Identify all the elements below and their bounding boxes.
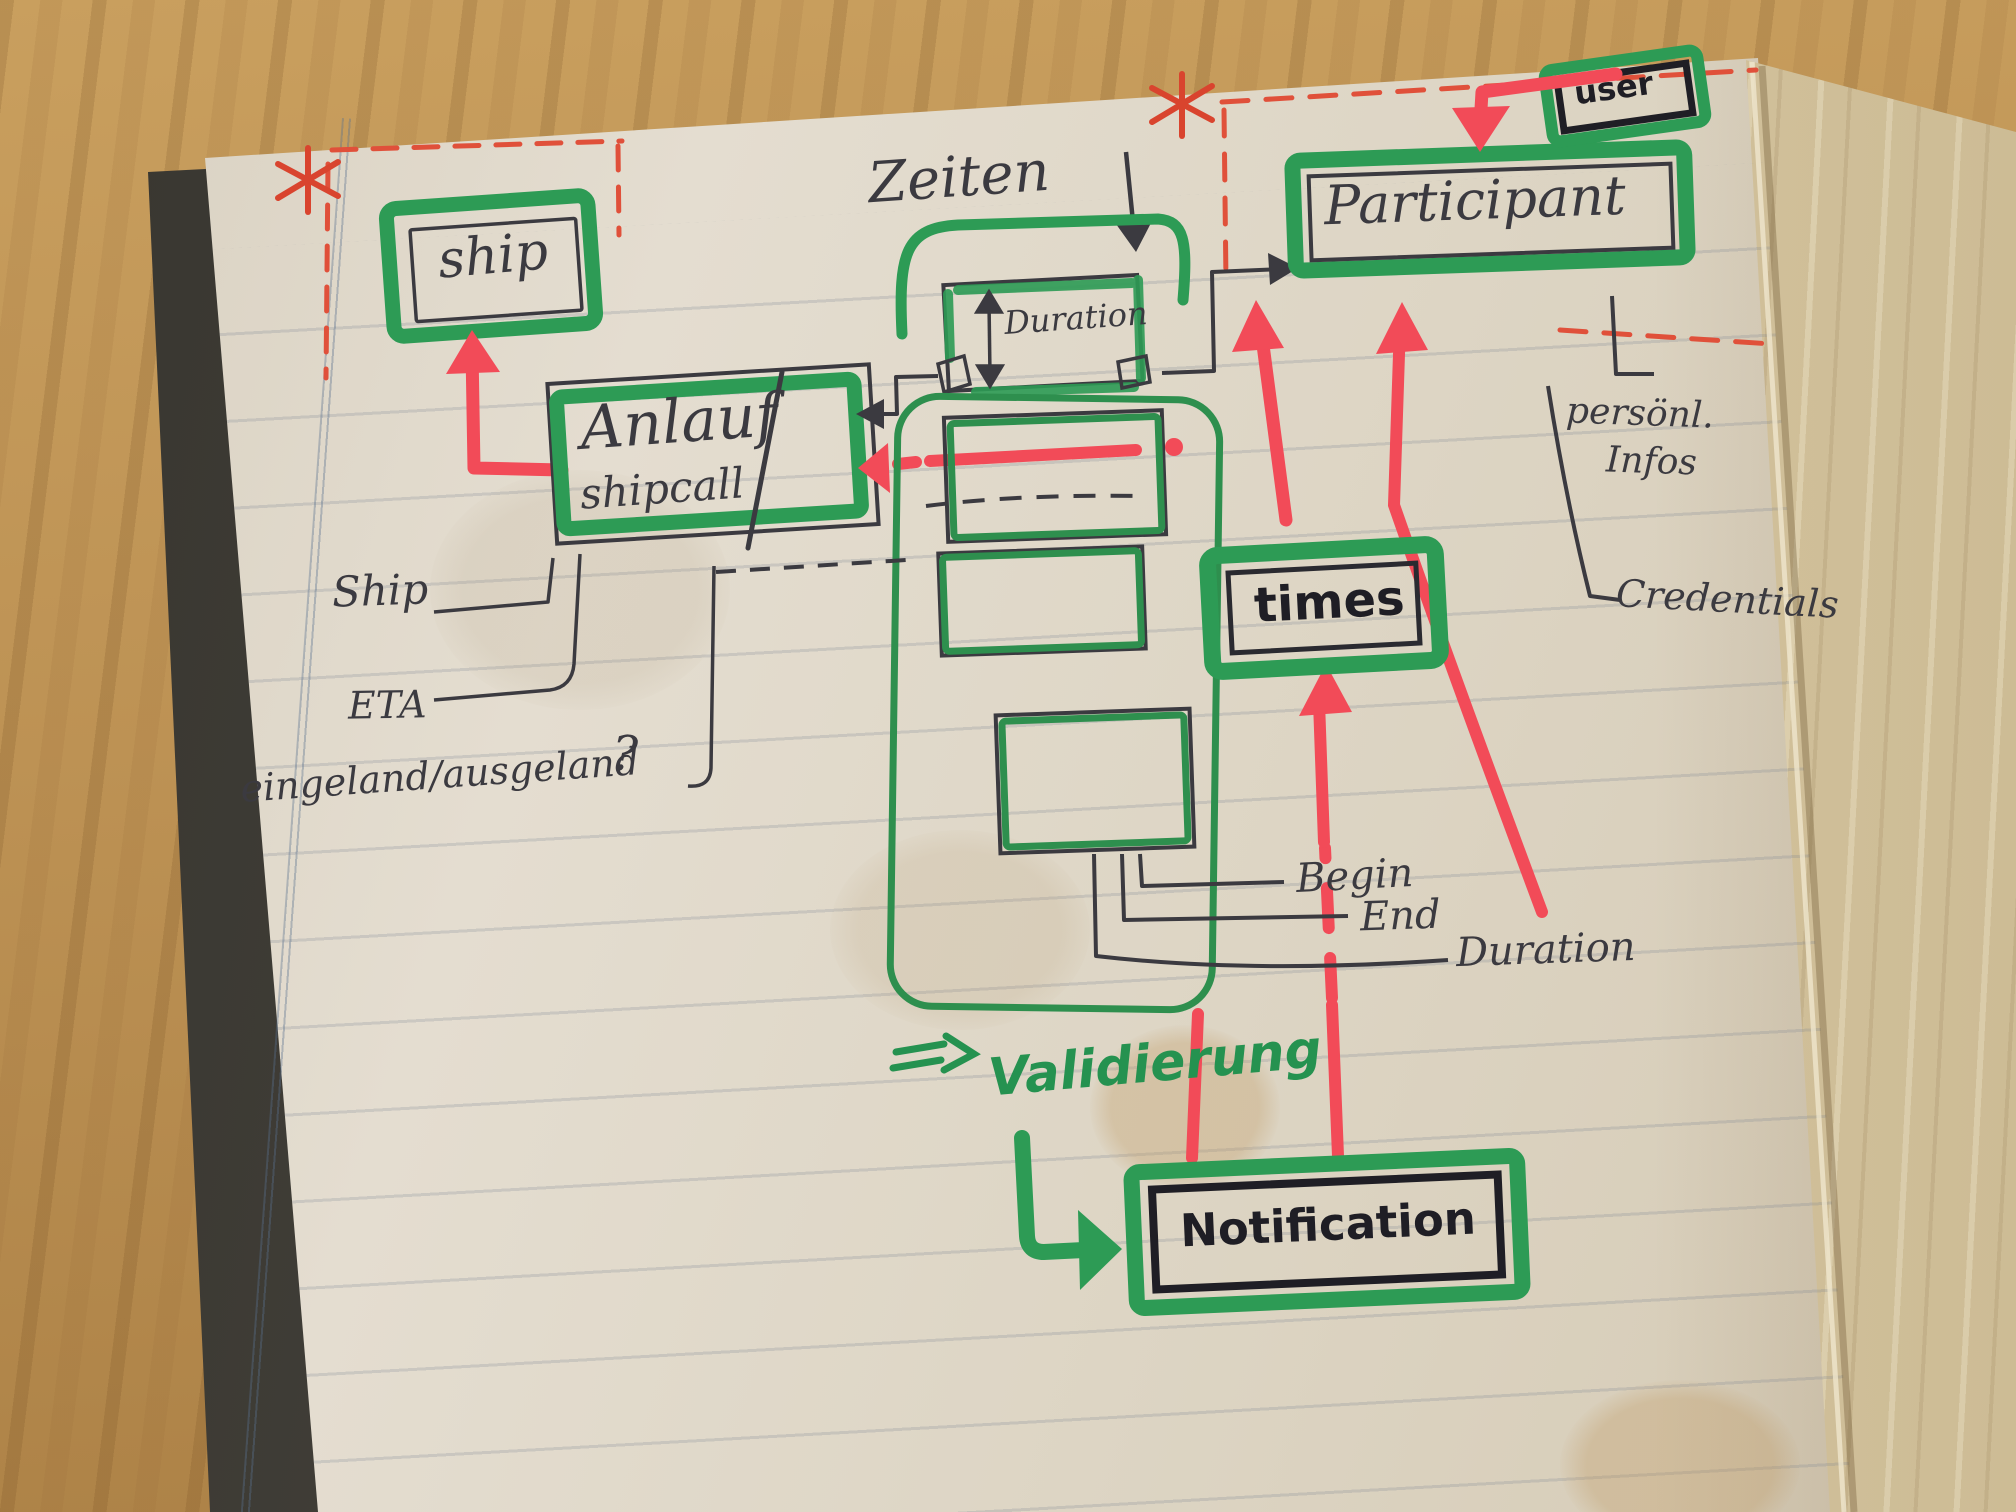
page-fold-edge — [1752, 62, 1854, 1512]
duration-box-label: Duration — [1003, 297, 1148, 339]
notification-box-label: Notification — [1179, 1196, 1476, 1254]
duration-attribute-label: Duration — [1455, 927, 1636, 973]
eta-attribute-label: ETA — [348, 685, 427, 724]
end-attribute-label: End — [1359, 895, 1441, 938]
personal-infos-label-line2: Infos — [1605, 442, 1697, 481]
zeiten-annotation: Zeiten — [866, 144, 1051, 213]
participant-box-label: Participant — [1323, 169, 1626, 233]
time-slot-box-1 — [926, 410, 1166, 542]
validierung-arrow-icon — [893, 1036, 974, 1070]
credentials-attribute-label: Credentials — [1615, 574, 1839, 624]
ship-attribute-label: Ship — [331, 568, 429, 613]
arrow-times-to-participant — [1232, 300, 1286, 520]
dashed-arrow-to-shipcall — [858, 438, 1183, 493]
question-mark-annotation: ? — [611, 730, 638, 779]
time-slot-box-2 — [938, 546, 1145, 655]
shipcall-box-sublabel: shipcall — [579, 462, 746, 515]
time-slot-box-3 — [996, 709, 1195, 854]
duration-span-arrow-icon — [977, 292, 1002, 386]
arrow-validierung-to-notification — [1022, 1138, 1122, 1290]
asterisk-icon — [1152, 74, 1212, 136]
arrow-shipcall-to-ship — [446, 330, 562, 470]
anchor-diamond-icon — [938, 356, 970, 392]
user-box-label: user — [1572, 67, 1655, 110]
notebook-photo: ship Anlauf shipcall Zeiten Duration Par… — [0, 0, 2016, 1512]
personal-infos-label-line1: persönl. — [1565, 393, 1714, 434]
zeiten-down-arrow-icon — [1116, 152, 1152, 252]
dashed-line-left — [716, 560, 906, 572]
arrow-notification-to-times — [1299, 664, 1352, 1156]
diagram-strokes — [0, 0, 2016, 1512]
shipcall-box-label: Anlauf — [578, 385, 780, 459]
times-box-label: times — [1253, 574, 1406, 630]
